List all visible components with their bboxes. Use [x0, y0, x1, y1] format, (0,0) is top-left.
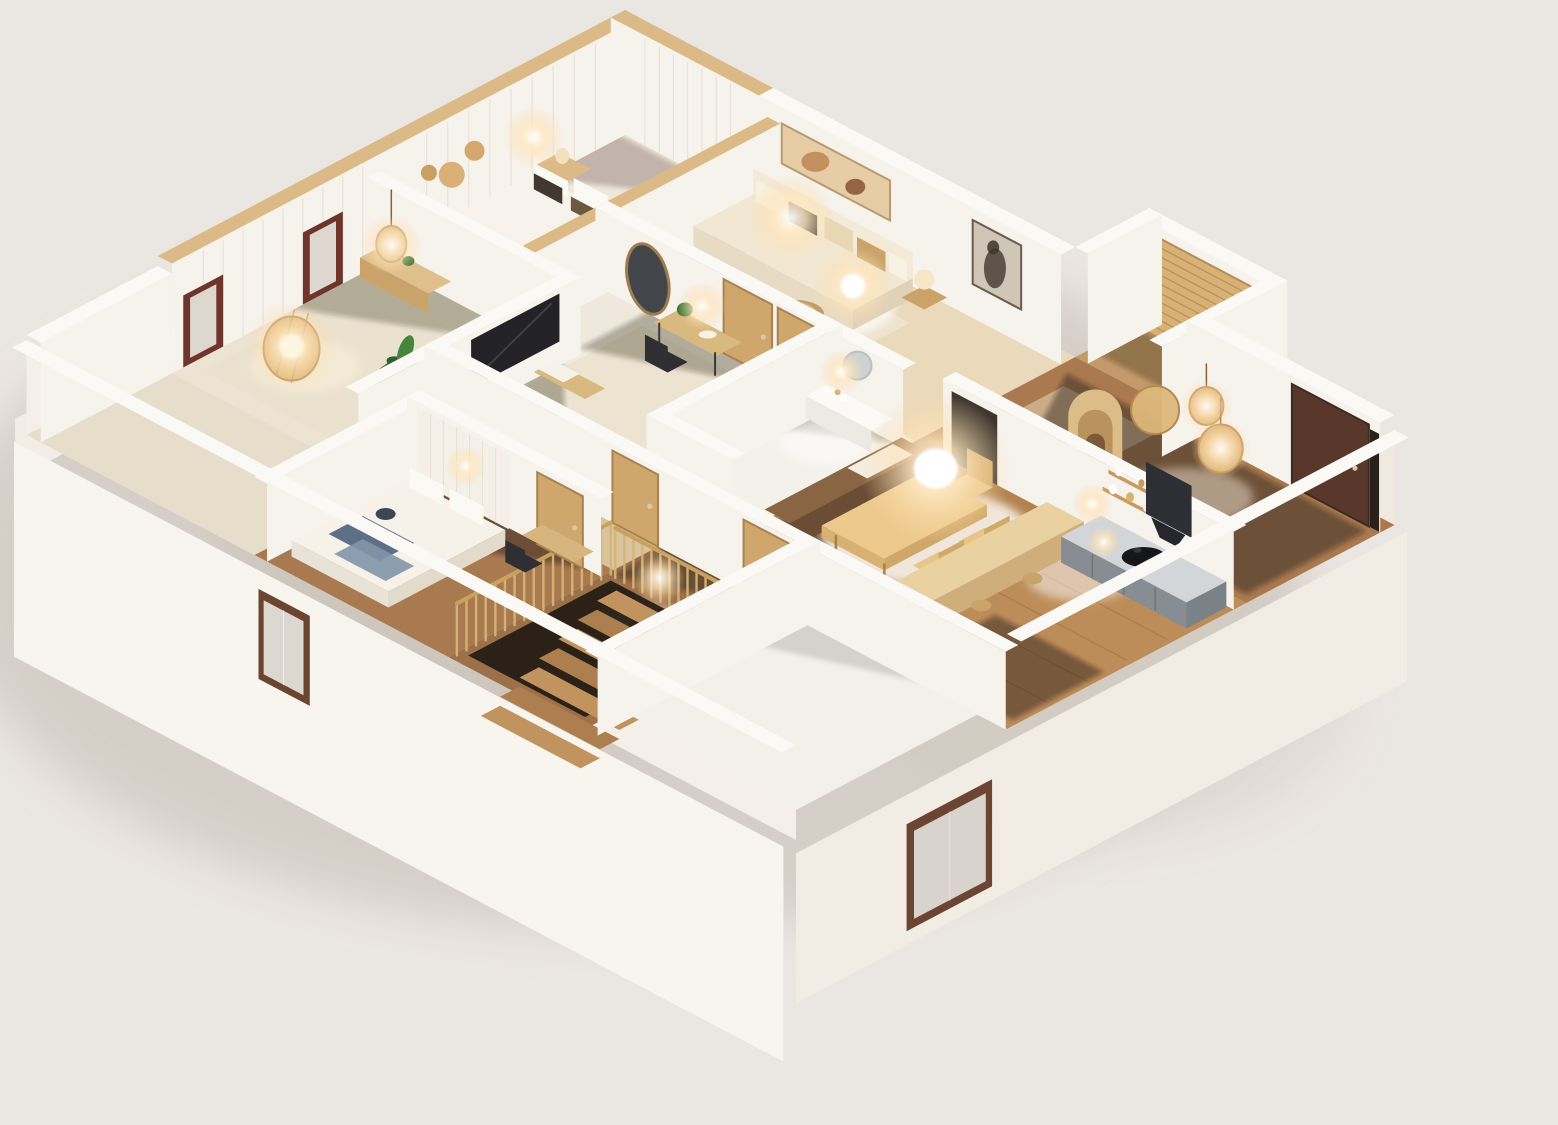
- door-oak-hall-1: [761, 334, 766, 339]
- lamp-glow-living-1: [746, 174, 834, 262]
- office-desk-papers: [699, 331, 717, 339]
- lamp-glow-pendant-bedroom-left: [361, 215, 421, 275]
- lamp-glow-bath: [820, 350, 864, 394]
- bath-bottle-3: [841, 396, 847, 402]
- kitchen-stool-2: [971, 600, 991, 612]
- lamp-glow-kitchen-1: [1072, 484, 1112, 524]
- bed-lower-dark-item: [376, 508, 396, 520]
- floorplan-3d-render: [0, 0, 1558, 1125]
- lamp-glow-kitchen-2: [1088, 526, 1120, 558]
- kitchen-stool-1: [1023, 573, 1043, 585]
- scene-root: [0, 10, 1409, 1062]
- decor-woven-fan: [1131, 386, 1179, 434]
- wall-plate-decor-1: [465, 141, 485, 161]
- lamp-glow-sconce-bedroom-primary: [504, 107, 564, 167]
- artwork-portrait-head: [987, 240, 999, 254]
- kitchen-jar-2: [1126, 492, 1134, 502]
- table-lamp: [914, 270, 934, 290]
- door-oak-bedroom-lower: [572, 525, 577, 530]
- kitchen-burner-1: [1133, 548, 1141, 553]
- artwork-panoramic-shape-1: [801, 152, 829, 172]
- door-oak-stairhall-1: [647, 504, 652, 509]
- wall-plate-decor-3: [421, 165, 437, 181]
- artwork-portrait-figure: [984, 248, 1006, 288]
- lamp-glow-bedroom-lower: [445, 446, 485, 486]
- lamp-glow-stair: [633, 552, 685, 604]
- lamp-core-living: [841, 274, 865, 298]
- kitchen-jar-4: [1116, 468, 1122, 476]
- artwork-panoramic-shape-2: [845, 179, 865, 195]
- lamp-glow-office: [678, 283, 726, 331]
- wall-plate-decor-2: [439, 162, 465, 188]
- lamp-core-basket: [280, 335, 304, 359]
- floorplan-render-canvas: [0, 0, 1558, 1125]
- kitchen-jar-5: [1138, 479, 1144, 487]
- kitchen-jar-1: [1109, 484, 1117, 494]
- lamp-glow-entry-2: [1191, 419, 1251, 479]
- lamp-core-dining: [914, 449, 958, 489]
